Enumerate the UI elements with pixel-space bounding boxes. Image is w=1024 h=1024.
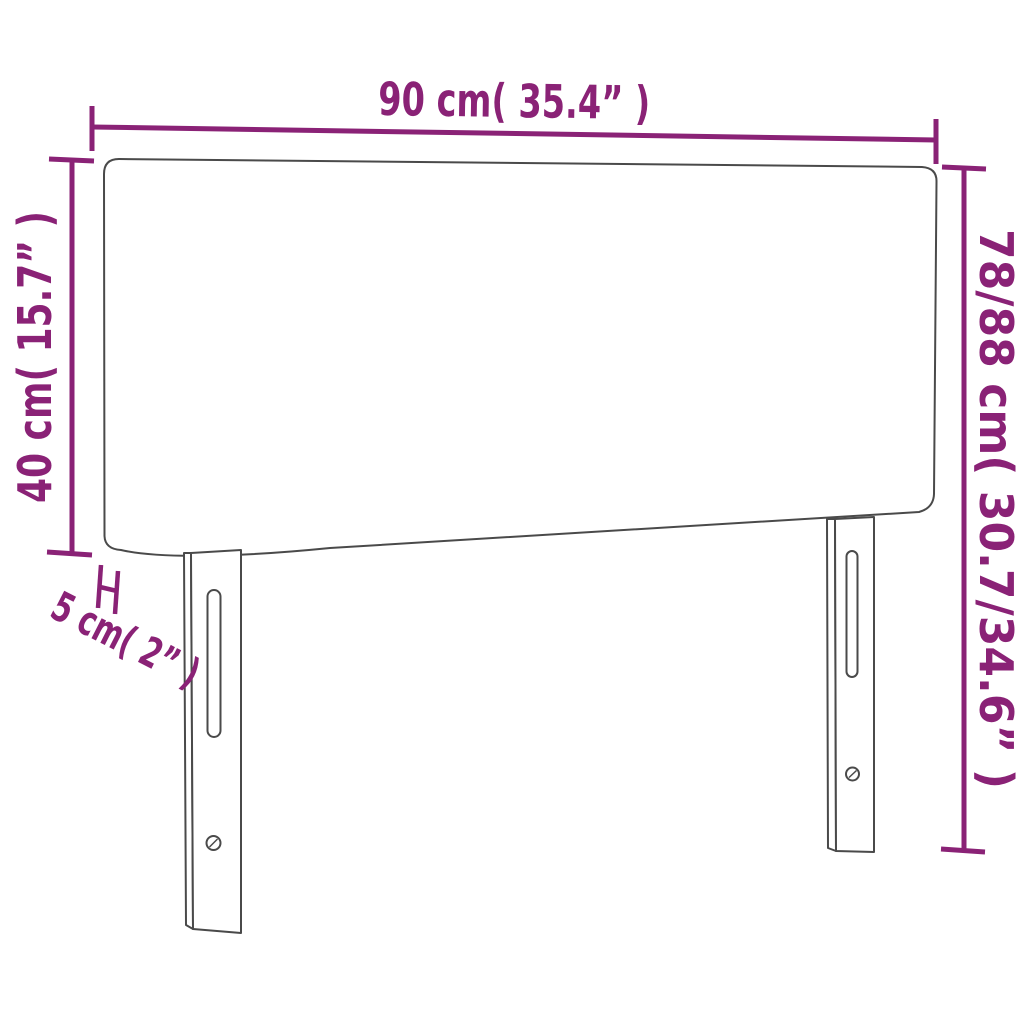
total-height-dimension-label: 78/88 cm( 30.7/34.6” ) (969, 229, 1023, 789)
diagram-canvas: 90 cm( 35.4” ) 40 cm( 15.7” ) 78/88 cm( … (0, 0, 1024, 1024)
headboard-drawing (104, 159, 937, 933)
thickness-dimension-label: 5 cm( 2” ) (43, 582, 207, 697)
thickness-connector-line (100, 587, 117, 591)
left-leg (191, 550, 241, 933)
headboard-panel (104, 159, 937, 556)
panel-height-tick-top (49, 159, 94, 161)
total-height-tick-top (942, 167, 986, 169)
width-dimension-label: 90 cm( 35.4” ) (378, 72, 651, 130)
right-leg (835, 517, 874, 852)
width-dimension-line (92, 127, 936, 140)
total-height-tick-bottom (941, 849, 985, 852)
panel-height-dimension-label: 40 cm( 15.7” ) (8, 211, 62, 503)
panel-height-tick-bottom (47, 552, 92, 555)
headboard-dimension-diagram: 90 cm( 35.4” ) 40 cm( 15.7” ) 78/88 cm( … (0, 0, 1024, 1024)
